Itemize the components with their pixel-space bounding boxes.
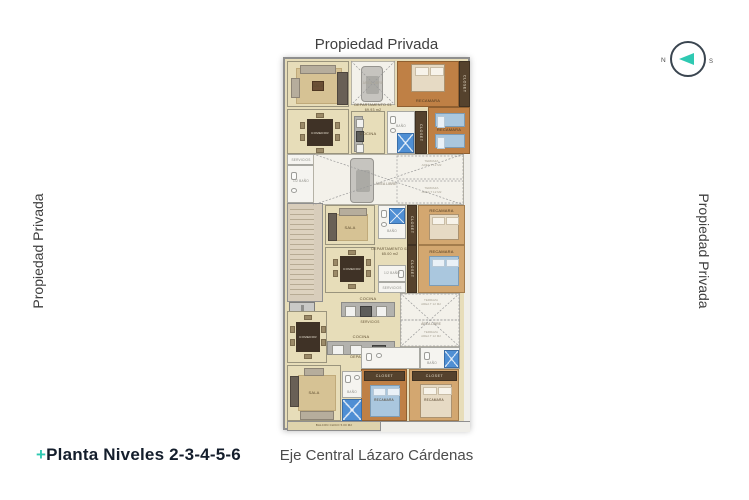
- room-recamara-d1-a: CLOSET RECAMARA: [361, 369, 407, 421]
- car: [350, 158, 374, 203]
- room-sala-d3: SALA: [287, 61, 349, 107]
- bed: [435, 134, 465, 148]
- terraza-label: TERRAZA AREA T 12 M2: [401, 298, 461, 306]
- shower: [342, 399, 362, 421]
- bano-label: BAÑO: [343, 390, 361, 394]
- dining-table: COMEDOR: [296, 322, 320, 352]
- bed: [420, 384, 452, 418]
- sink: [291, 188, 297, 193]
- area-libre-mid: TERRAZA AREA T 12 M2 ÁREA LIBRE TERRAZA …: [313, 154, 464, 205]
- sofa: [337, 72, 348, 105]
- room-cocina-d3: COCINA: [351, 111, 385, 154]
- closet-label: CLOSET: [410, 216, 414, 234]
- room-servicios-d3: SERVICIOS: [287, 154, 315, 165]
- room-sala-d2: SALA: [325, 205, 375, 245]
- toilet: [291, 172, 297, 180]
- compass: N S: [658, 36, 718, 84]
- room-servicios-d2: SERVICIOS: [378, 282, 406, 293]
- shower: [444, 350, 459, 368]
- toilet: [390, 116, 396, 124]
- closet-d2-a: CLOSET: [407, 205, 417, 245]
- cocina-label: COCINA: [339, 334, 383, 339]
- bed: [429, 214, 459, 240]
- kitchen-counter: [341, 302, 395, 317]
- sink: [381, 222, 387, 227]
- page: { "labels": { "propiedad_top": "Propieda…: [0, 0, 749, 500]
- terraza-bottom: TERRAZA AREA T 12 M2 ÁREA LIBRE TERRAZA …: [400, 293, 460, 347]
- comedor-label: COMEDOR: [299, 335, 317, 339]
- room-comedor-d1: COMEDOR: [287, 311, 327, 363]
- comedor-label: COMEDOR: [343, 267, 361, 271]
- room-comedor-d2: COMEDOR: [325, 247, 375, 293]
- propiedad-left-label: Propiedad Privada: [30, 193, 46, 308]
- toilet: [398, 270, 404, 278]
- closet-d2-b: CLOSET: [407, 245, 417, 293]
- closet-d1-a: CLOSET: [364, 371, 405, 381]
- area-libre-top: ÁREA LIBRE: [351, 61, 395, 105]
- car-roof: [366, 76, 379, 94]
- floor-plan: SALA ÁREA LIBRE RECAMARA CLOSET COMEDOR …: [283, 57, 470, 430]
- room-bano-d3: BAÑO: [387, 111, 415, 154]
- shower: [397, 133, 414, 153]
- compass-icon: N S: [658, 36, 718, 84]
- compass-north-label: N: [661, 57, 666, 64]
- room-recamara-d3-b: RECAMARA: [428, 107, 470, 154]
- plan-title-text: Planta Niveles 2-3-4-5-6: [46, 445, 241, 464]
- sofa: [300, 65, 336, 74]
- car: [361, 66, 383, 102]
- bed: [411, 64, 445, 92]
- closet-d3-a: CLOSET: [459, 61, 470, 107]
- sidewalk: [381, 421, 470, 432]
- recamara-label: RECAMARA: [419, 208, 464, 213]
- closet-label: CLOSET: [376, 374, 394, 378]
- room-recamara-d3-a: RECAMARA: [397, 61, 459, 107]
- propiedad-top-label: Propiedad Privada: [283, 36, 470, 53]
- compass-south-label: S: [709, 59, 713, 65]
- dept2-label: DEPARTAMENTO 02 65.00 m2: [370, 247, 410, 256]
- comedor-label: COMEDOR: [311, 131, 329, 135]
- cocina-label: COCINA: [341, 296, 395, 301]
- bano-label: BAÑO: [379, 229, 405, 233]
- balcon-label: BALCON CHICO 5.00 M2: [288, 423, 380, 427]
- recamara-label: RECAMARA: [398, 98, 458, 103]
- coffee-table: [312, 81, 324, 91]
- room-medio-bano-d2: 1/2 BAÑO: [378, 265, 406, 282]
- recamara-label: RECAMARA: [429, 127, 469, 132]
- corridor-bath-d1: [361, 347, 420, 369]
- room-sala-d1: SALA: [287, 365, 341, 421]
- closet-d1-b: CLOSET: [412, 371, 457, 381]
- dining-table: COMEDOR: [307, 119, 333, 146]
- terraza-label: TERRAZA AREA T 12 M2: [398, 186, 465, 194]
- kitchen-counter: [354, 116, 363, 152]
- room-comedor-d3: COMEDOR: [287, 109, 349, 154]
- servicios-label: SERVICIOS: [350, 320, 390, 324]
- terraza-label: TERRAZA AREA T 12 M2: [401, 330, 461, 338]
- propiedad-right-label: Propiedad Privada: [696, 193, 712, 308]
- compass-needle-icon: [679, 53, 694, 65]
- toilet: [345, 375, 351, 383]
- sink: [390, 128, 396, 133]
- balcony: BALCON CHICO 5.00 M2: [287, 421, 381, 431]
- closet-label: CLOSET: [419, 124, 423, 142]
- armchair: [304, 368, 324, 376]
- plus-icon: +: [36, 445, 46, 464]
- sofa: [328, 213, 337, 241]
- armchair: [291, 78, 300, 98]
- sofa: [300, 411, 334, 420]
- bano-label: BAÑO: [421, 361, 443, 365]
- servicios-label: SERVICIOS: [288, 158, 314, 162]
- stairs: [287, 203, 323, 302]
- shower: [389, 208, 405, 224]
- stairs-steps: [290, 209, 314, 295]
- room-recamara-d2-a: RECAMARA: [418, 205, 465, 245]
- toilet: [366, 353, 372, 361]
- sofa: [290, 376, 299, 407]
- sink: [354, 375, 360, 380]
- closet-label: CLOSET: [426, 374, 444, 378]
- toilet: [381, 210, 387, 218]
- street-label: Eje Central Lázaro Cárdenas: [253, 447, 500, 464]
- bed: [435, 113, 465, 127]
- servicios-label: SERVICIOS: [379, 286, 405, 290]
- dining-table: COMEDOR: [340, 256, 364, 282]
- recamara-label: RECAMARA: [419, 249, 464, 254]
- closet-label: CLOSET: [410, 260, 414, 278]
- area-libre-label: ÁREA LIBRE: [401, 322, 461, 326]
- sofa: [339, 208, 367, 216]
- rug: [298, 375, 336, 411]
- room-recamara-d2-b: RECAMARA: [418, 245, 465, 293]
- room-bano-d2: BAÑO: [378, 205, 406, 239]
- closet-d3-b: CLOSET: [415, 111, 427, 154]
- room-bano-d1-right: BAÑO: [420, 347, 460, 369]
- closet-label: CLOSET: [463, 75, 467, 93]
- toilet: [424, 352, 430, 360]
- room-recamara-d1-b: CLOSET RECAMARA: [409, 369, 459, 421]
- car-roof: [356, 170, 370, 192]
- bed: [429, 256, 459, 286]
- sink: [376, 353, 382, 358]
- room-bano-d1-left: BAÑO: [342, 371, 362, 398]
- bed: [370, 385, 400, 417]
- plan-title: +Planta Niveles 2-3-4-5-6: [36, 445, 241, 465]
- terraza-label: TERRAZA AREA T 12 M2: [398, 159, 465, 167]
- rug: [335, 214, 368, 241]
- room-medio-bano-d3: 1/2 BAÑO: [287, 165, 315, 203]
